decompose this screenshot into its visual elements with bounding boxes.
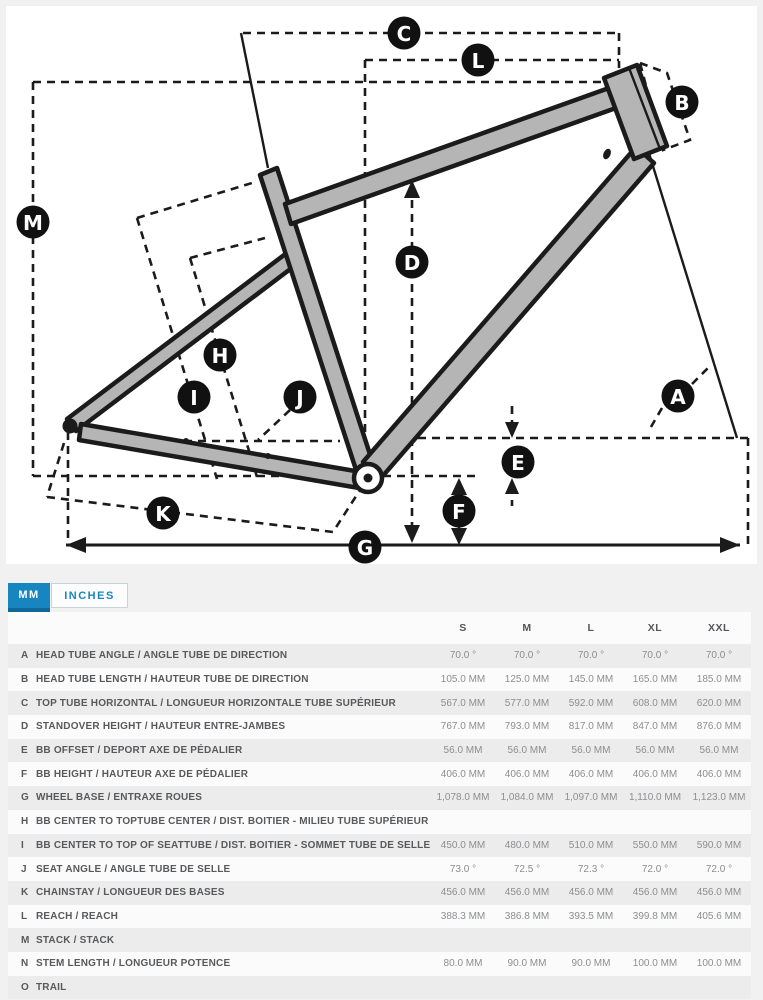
row-value-s: 105.0 MM [431, 674, 495, 685]
table-row-i: IBB CENTER TO TOP OF SEATTUBE / DIST. BO… [8, 834, 751, 858]
dimension-badge-g: G [349, 531, 382, 564]
row-letter: A [8, 650, 36, 661]
badge-letter: C [397, 22, 412, 46]
dimension-badge-a: A [662, 380, 695, 413]
badge-letter: D [404, 251, 421, 275]
row-value-xxl [687, 935, 751, 946]
row-value-xxl: 70.0 ° [687, 650, 751, 661]
row-value-s [431, 935, 495, 946]
row-label: BB HEIGHT / HAUTEUR AXE DE PÉDALIER [36, 769, 431, 780]
row-value-xxl: 72.0 ° [687, 864, 751, 875]
geometry-table: SMLXLXXLAHEAD TUBE ANGLE / ANGLE TUBE DE… [8, 612, 751, 999]
row-value-m: 1,084.0 MM [495, 792, 559, 803]
row-value-s: 70.0 ° [431, 650, 495, 661]
row-value-m: 793.0 MM [495, 721, 559, 732]
row-value-xxl: 100.0 MM [687, 958, 751, 969]
table-row-c: CTOP TUBE HORIZONTAL / LONGUEUR HORIZONT… [8, 691, 751, 715]
tab-mm[interactable]: MM [8, 583, 50, 612]
row-value-s: 567.0 MM [431, 698, 495, 709]
row-value-l: 817.0 MM [559, 721, 623, 732]
row-value-xl: 70.0 ° [623, 650, 687, 661]
dimension-badge-f: F [443, 495, 476, 528]
table-row-o: OTRAIL [8, 976, 751, 1000]
row-value-xl: 72.0 ° [623, 864, 687, 875]
row-value-m: 56.0 MM [495, 745, 559, 756]
table-row-a: AHEAD TUBE ANGLE / ANGLE TUBE DE DIRECTI… [8, 644, 751, 668]
dimension-badge-m: M [17, 206, 50, 239]
row-value-xxl [687, 816, 751, 827]
row-value-xl [623, 935, 687, 946]
row-letter: O [8, 982, 36, 993]
table-row-e: EBB OFFSET / DEPORT AXE DE PÉDALIER56.0 … [8, 739, 751, 763]
row-value-m: 577.0 MM [495, 698, 559, 709]
table-header-row: SMLXLXXL [8, 612, 751, 644]
geometry-diagram-svg: CLBMDHIJAEFKG [0, 0, 763, 570]
row-label: CHAINSTAY / LONGUEUR DES BASES [36, 887, 431, 898]
row-value-xxl: 406.0 MM [687, 769, 751, 780]
row-value-xxl: 405.6 MM [687, 911, 751, 922]
row-value-m: 386.8 MM [495, 911, 559, 922]
row-value-xl: 56.0 MM [623, 745, 687, 756]
row-value-s [431, 816, 495, 827]
row-value-xl: 550.0 MM [623, 840, 687, 851]
row-label: STANDOVER HEIGHT / HAUTEUR ENTRE-JAMBES [36, 721, 431, 732]
row-label: HEAD TUBE LENGTH / HAUTEUR TUBE DE DIREC… [36, 674, 431, 685]
size-header-xxl: XXL [687, 622, 751, 634]
cable-guide-1 [183, 438, 189, 444]
row-value-l: 1,097.0 MM [559, 792, 623, 803]
row-label: STACK / STACK [36, 935, 431, 946]
row-letter: G [8, 792, 36, 803]
dimension-badge-d: D [396, 246, 429, 279]
row-value-xl: 608.0 MM [623, 698, 687, 709]
row-value-m: 70.0 ° [495, 650, 559, 661]
badge-letter: A [670, 385, 686, 409]
dimension-badge-k: K [147, 497, 180, 530]
row-label: STEM LENGTH / LONGUEUR POTENCE [36, 958, 431, 969]
size-header-xl: XL [623, 622, 687, 634]
badge-letter: H [212, 344, 229, 368]
row-value-s: 56.0 MM [431, 745, 495, 756]
table-row-g: GWHEEL BASE / ENTRAXE ROUES1,078.0 MM1,0… [8, 786, 751, 810]
row-label: SEAT ANGLE / ANGLE TUBE DE SELLE [36, 864, 431, 875]
row-value-m [495, 816, 559, 827]
row-value-l: 510.0 MM [559, 840, 623, 851]
frame-geometry-diagram: CLBMDHIJAEFKG [0, 0, 763, 570]
badge-letter: M [23, 211, 43, 235]
row-value-xl: 165.0 MM [623, 674, 687, 685]
row-label: BB CENTER TO TOPTUBE CENTER / DIST. BOIT… [36, 816, 431, 827]
row-letter: I [8, 840, 36, 851]
size-header-m: M [495, 622, 559, 634]
table-row-n: NSTEM LENGTH / LONGUEUR POTENCE80.0 MM90… [8, 952, 751, 976]
row-value-xl: 406.0 MM [623, 769, 687, 780]
badge-letter: G [357, 536, 373, 560]
row-value-l [559, 982, 623, 993]
row-value-m [495, 935, 559, 946]
row-label: REACH / REACH [36, 911, 431, 922]
row-letter: E [8, 745, 36, 756]
row-letter: H [8, 816, 36, 827]
row-value-xxl: 185.0 MM [687, 674, 751, 685]
badge-letter: I [190, 386, 197, 410]
row-value-m: 406.0 MM [495, 769, 559, 780]
row-value-s: 1,078.0 MM [431, 792, 495, 803]
row-letter: B [8, 674, 36, 685]
row-value-s: 388.3 MM [431, 911, 495, 922]
row-value-xl: 100.0 MM [623, 958, 687, 969]
dimension-badge-j: J [284, 381, 317, 414]
badge-letter: B [674, 91, 689, 115]
row-value-l: 145.0 MM [559, 674, 623, 685]
row-value-xl: 399.8 MM [623, 911, 687, 922]
row-value-xl [623, 982, 687, 993]
row-letter: L [8, 911, 36, 922]
dimension-badge-e: E [502, 446, 535, 479]
row-label: BB CENTER TO TOP OF SEATTUBE / DIST. BOI… [36, 840, 431, 851]
row-label: WHEEL BASE / ENTRAXE ROUES [36, 792, 431, 803]
row-value-l: 90.0 MM [559, 958, 623, 969]
row-label: TRAIL [36, 982, 431, 993]
row-letter: F [8, 769, 36, 780]
row-value-s: 450.0 MM [431, 840, 495, 851]
row-value-l: 70.0 ° [559, 650, 623, 661]
row-value-s [431, 982, 495, 993]
bottom-bracket-center [364, 474, 373, 483]
row-label: TOP TUBE HORIZONTAL / LONGUEUR HORIZONTA… [36, 698, 431, 709]
row-value-m: 72.5 ° [495, 864, 559, 875]
row-value-l: 72.3 ° [559, 864, 623, 875]
row-value-xl: 847.0 MM [623, 721, 687, 732]
row-value-xxl [687, 982, 751, 993]
row-value-l: 456.0 MM [559, 887, 623, 898]
row-label: BB OFFSET / DEPORT AXE DE PÉDALIER [36, 745, 431, 756]
badge-letter: F [452, 500, 466, 524]
table-row-h: HBB CENTER TO TOPTUBE CENTER / DIST. BOI… [8, 810, 751, 834]
row-value-l: 592.0 MM [559, 698, 623, 709]
row-letter: J [8, 864, 36, 875]
cable-guide-2 [265, 453, 271, 459]
row-letter: K [8, 887, 36, 898]
row-value-m: 456.0 MM [495, 887, 559, 898]
row-value-l [559, 816, 623, 827]
row-value-l: 56.0 MM [559, 745, 623, 756]
row-value-xxl: 620.0 MM [687, 698, 751, 709]
row-letter: M [8, 935, 36, 946]
row-value-xl: 456.0 MM [623, 887, 687, 898]
row-value-s: 406.0 MM [431, 769, 495, 780]
row-letter: N [8, 958, 36, 969]
dimension-badge-l: L [462, 44, 495, 77]
row-value-xxl: 876.0 MM [687, 721, 751, 732]
badge-letter: E [511, 451, 525, 475]
row-value-xxl: 456.0 MM [687, 887, 751, 898]
row-letter: D [8, 721, 36, 732]
row-value-s: 73.0 ° [431, 864, 495, 875]
size-header-l: L [559, 622, 623, 634]
dimension-badge-c: C [388, 17, 421, 50]
table-row-b: BHEAD TUBE LENGTH / HAUTEUR TUBE DE DIRE… [8, 668, 751, 692]
table-row-l: LREACH / REACH388.3 MM386.8 MM393.5 MM39… [8, 905, 751, 929]
dimension-badge-i: I [178, 381, 211, 414]
badge-letter: K [155, 502, 172, 526]
row-value-s: 80.0 MM [431, 958, 495, 969]
table-row-f: FBB HEIGHT / HAUTEUR AXE DE PÉDALIER406.… [8, 762, 751, 786]
badge-letter: J [294, 386, 303, 410]
row-value-s: 767.0 MM [431, 721, 495, 732]
row-value-xxl: 590.0 MM [687, 840, 751, 851]
row-value-m: 125.0 MM [495, 674, 559, 685]
row-label: HEAD TUBE ANGLE / ANGLE TUBE DE DIRECTIO… [36, 650, 431, 661]
dimension-badge-b: B [666, 86, 699, 119]
row-value-l: 406.0 MM [559, 769, 623, 780]
row-letter: C [8, 698, 36, 709]
table-row-m: MSTACK / STACK [8, 928, 751, 952]
table-row-d: DSTANDOVER HEIGHT / HAUTEUR ENTRE-JAMBES… [8, 715, 751, 739]
row-value-l: 393.5 MM [559, 911, 623, 922]
row-value-m: 90.0 MM [495, 958, 559, 969]
row-value-m [495, 982, 559, 993]
row-value-s: 456.0 MM [431, 887, 495, 898]
table-row-k: KCHAINSTAY / LONGUEUR DES BASES456.0 MM4… [8, 881, 751, 905]
table-row-j: JSEAT ANGLE / ANGLE TUBE DE SELLE73.0 °7… [8, 857, 751, 881]
tab-inches[interactable]: INCHES [51, 583, 128, 608]
size-header-s: S [431, 622, 495, 634]
row-value-xxl: 56.0 MM [687, 745, 751, 756]
row-value-l [559, 935, 623, 946]
badge-letter: L [472, 49, 485, 73]
row-value-m: 480.0 MM [495, 840, 559, 851]
row-value-xl [623, 816, 687, 827]
rear-dropout [63, 419, 78, 434]
row-value-xxl: 1,123.0 MM [687, 792, 751, 803]
dimension-badge-h: H [204, 339, 237, 372]
row-value-xl: 1,110.0 MM [623, 792, 687, 803]
